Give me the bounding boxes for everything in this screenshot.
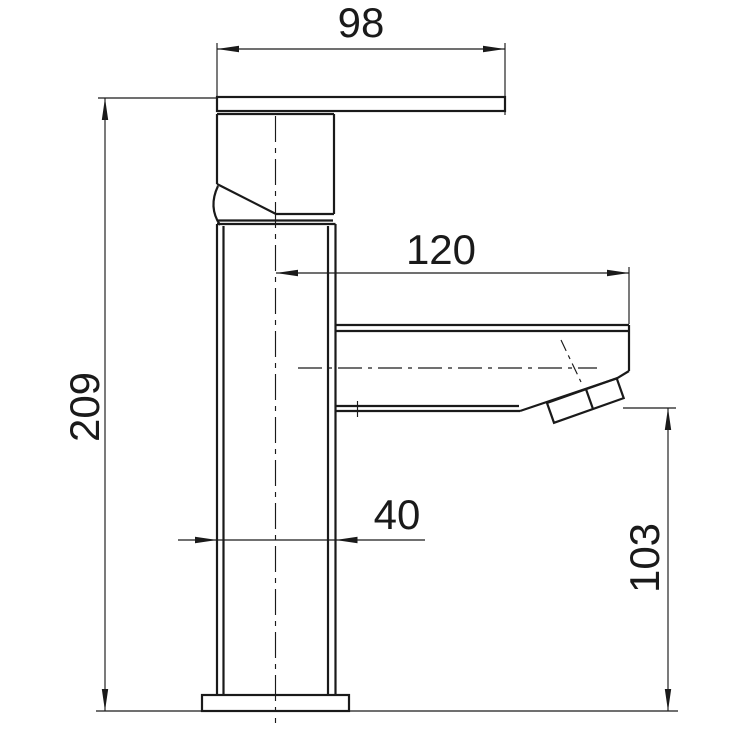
arrow-down-icon xyxy=(102,689,108,711)
technical-drawing-page: 98 120 209 40 xyxy=(0,0,742,742)
handle-lever xyxy=(217,97,505,111)
arrow-left-icon xyxy=(276,270,298,276)
arrow-left-icon xyxy=(336,537,358,543)
arrow-down-icon xyxy=(665,689,671,711)
aerator-divider-line xyxy=(586,389,593,409)
aerator xyxy=(547,378,624,423)
arrow-up-icon xyxy=(102,98,108,120)
centerlines xyxy=(276,116,598,723)
body-neck-joint xyxy=(217,221,336,225)
arrow-right-icon xyxy=(195,537,217,543)
dimension-body-width: 40 xyxy=(178,491,425,543)
dimension-total-height: 209 xyxy=(61,98,217,711)
faucet-body xyxy=(217,224,336,695)
dimension-spout-outlet-height: 103 xyxy=(621,408,676,711)
faucet-outline xyxy=(202,97,629,711)
aerator-axis-centerline xyxy=(561,340,581,382)
dim-label-spout-outlet-height: 103 xyxy=(621,523,668,593)
arrow-right-icon xyxy=(607,270,629,276)
arrow-left-icon xyxy=(217,46,239,52)
dim-label-body-width: 40 xyxy=(374,491,421,538)
faucet-side-elevation-drawing: 98 120 209 40 xyxy=(0,0,742,742)
housing-fillet-curve xyxy=(213,186,220,225)
dim-label-spout-reach: 120 xyxy=(406,226,476,273)
arrow-up-icon xyxy=(665,408,671,430)
arrow-right-icon xyxy=(483,46,505,52)
dim-label-handle-width: 98 xyxy=(338,0,385,46)
dim-label-total-height: 209 xyxy=(61,372,108,442)
